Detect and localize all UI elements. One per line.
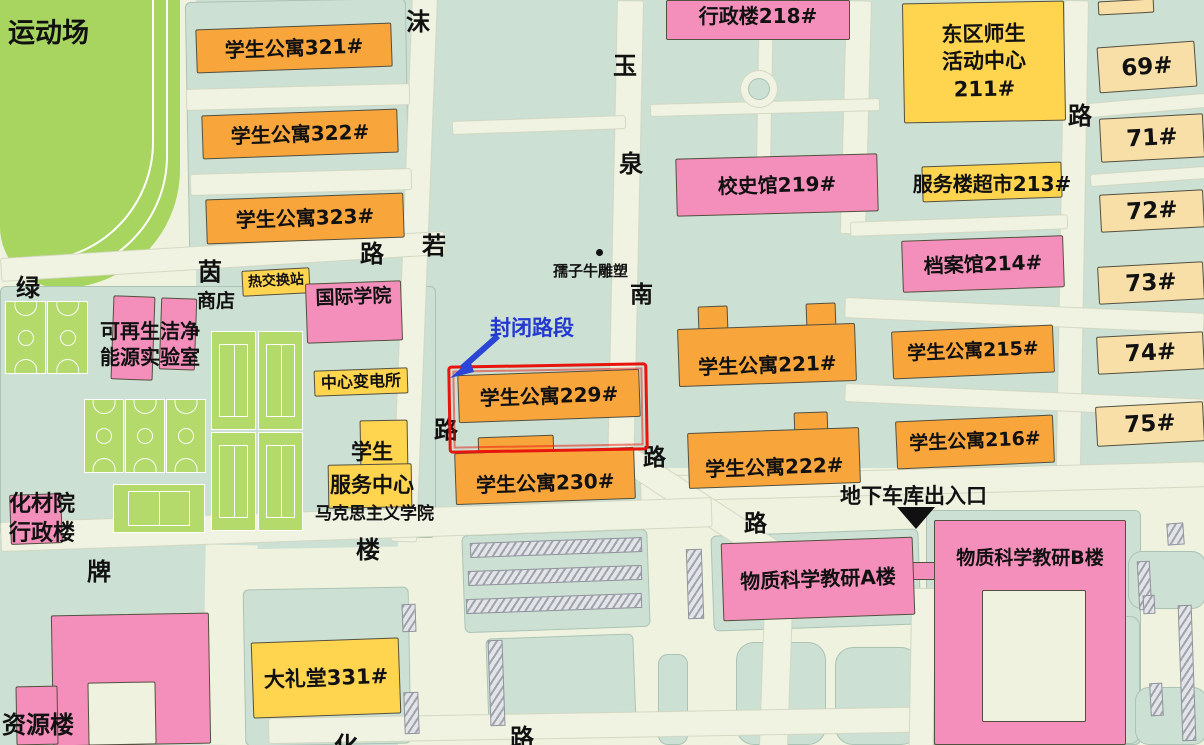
apartment-221: 学生公寓221# bbox=[677, 323, 857, 387]
garage-entrance-label: 地下车库出入口 bbox=[840, 480, 987, 510]
road-lvyin-2: 茵 bbox=[198, 252, 222, 287]
material-science-a: 物质科学教研A楼 bbox=[721, 537, 916, 622]
dorm-75: 75# bbox=[1095, 401, 1204, 447]
apartment-322: 学生公寓322# bbox=[201, 109, 398, 160]
dorm-73: 73# bbox=[1097, 261, 1204, 304]
apartment-216: 学生公寓216# bbox=[895, 415, 1055, 470]
apartment-230: 学生公寓230# bbox=[454, 447, 636, 505]
apartment-222: 学生公寓222# bbox=[687, 427, 861, 489]
sculpture-label: 孺子牛雕塑 bbox=[553, 260, 628, 281]
history-museum-219: 校史馆219# bbox=[675, 153, 878, 216]
road-south-1: 化 bbox=[334, 726, 358, 745]
service-supermarket-213-label: 服务楼超市213# bbox=[898, 171, 1086, 197]
archives-214: 档案馆214# bbox=[901, 235, 1065, 293]
road-south-2: 路 bbox=[510, 718, 534, 745]
admin-building-218: 行政楼218# bbox=[666, 0, 850, 40]
dorm-69: 69# bbox=[1097, 41, 1198, 94]
road-yuquan-2: 泉 bbox=[619, 144, 643, 179]
road-yuquan-1: 玉 bbox=[613, 46, 637, 81]
closed-road-label: 封闭路段 bbox=[490, 312, 574, 342]
road-moruo-2: 若 bbox=[422, 226, 446, 261]
international-college: 国际学院 bbox=[305, 280, 403, 343]
apartment-321: 学生公寓321# bbox=[195, 23, 392, 74]
student-service-center-label: 学生 服务中心 bbox=[320, 436, 424, 501]
heat-exchange-station: 热交换站 bbox=[241, 267, 310, 297]
huacai-admin-label: 化材院 行政楼 bbox=[0, 490, 88, 549]
dorm-74: 74# bbox=[1096, 331, 1204, 375]
road-lvyin-1: 绿 bbox=[16, 268, 40, 303]
campus-map: 学生公寓321#学生公寓322#学生公寓323#热交换站国际学院中心变电所行政楼… bbox=[0, 0, 1204, 745]
shop-label: 商店 bbox=[197, 289, 235, 314]
road-pailou-1: 牌 bbox=[87, 552, 111, 587]
central-substation: 中心变电所 bbox=[314, 367, 409, 396]
auditorium-331: 大礼堂331# bbox=[251, 637, 402, 718]
sculpture-dot-icon bbox=[596, 249, 603, 256]
east-activity-center-211: 东区师生 活动中心 211# bbox=[902, 1, 1066, 124]
road-pailou-2: 楼 bbox=[356, 530, 380, 565]
material-science-b-courtyard bbox=[982, 590, 1086, 722]
garage-entrance-triangle-icon bbox=[897, 507, 935, 529]
small-dorm-sliver bbox=[1098, 0, 1155, 15]
marxism-college-label: 马克思主义学院 bbox=[315, 503, 434, 525]
dorm-72: 72# bbox=[1099, 189, 1204, 232]
resource-building-courtyard bbox=[87, 681, 156, 745]
stadium-label: 运动场 bbox=[8, 16, 89, 51]
renewable-energy-lab-label: 可再生洁净 能源实验室 bbox=[88, 318, 212, 370]
road-center-lu: 路 bbox=[744, 504, 767, 538]
road-east-lu: 路 bbox=[1068, 96, 1092, 131]
road-lvyin-3: 路 bbox=[360, 234, 384, 269]
dorm-71: 71# bbox=[1099, 113, 1204, 162]
resource-building-label: 资源楼 bbox=[2, 710, 74, 741]
apartment-215: 学生公寓215# bbox=[891, 324, 1055, 379]
road-yuquan-3: 南 bbox=[630, 275, 653, 309]
road-moruo-1: 沫 bbox=[406, 2, 430, 37]
